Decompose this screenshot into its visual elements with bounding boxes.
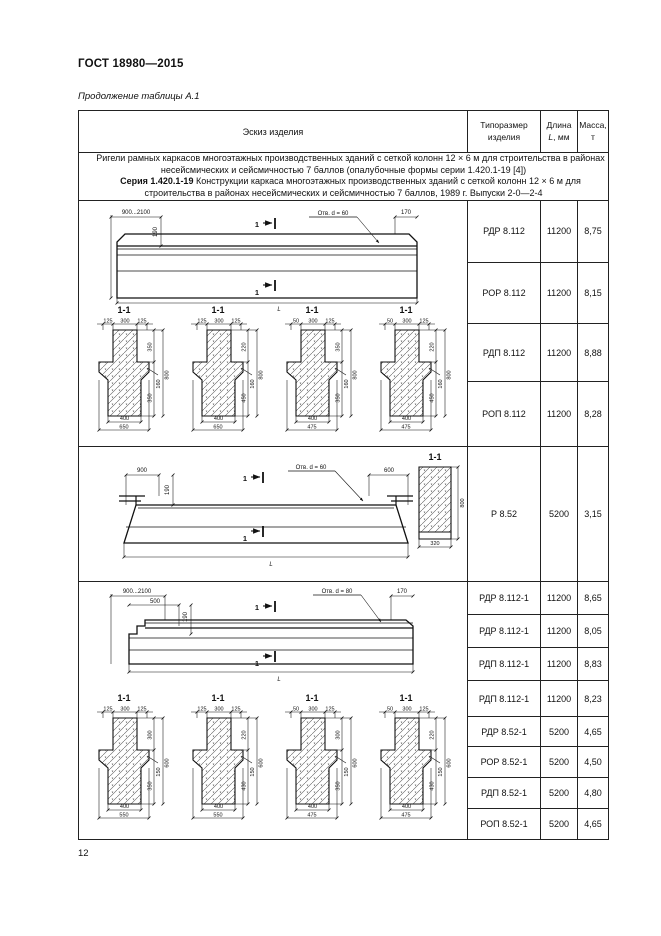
series-note: Ригели рамных каркасов многоэтажных прои…	[79, 153, 609, 201]
mass-cell: 8,88	[578, 324, 609, 382]
dim-label: 475	[307, 812, 316, 818]
doc-number: ГОСТ 18980—2015	[78, 58, 184, 70]
length-cell: 5200	[541, 747, 578, 778]
dim-label: 125	[103, 706, 112, 712]
hole-label: Отв. d = 60	[296, 465, 327, 471]
dim-label: 50	[387, 706, 393, 712]
mass-cell: 8,23	[578, 681, 609, 717]
dim-label: 150	[438, 767, 444, 776]
dim-label: 300	[308, 706, 317, 712]
type-cell: РДР 8.112-1	[468, 614, 541, 647]
dim-label: 125	[197, 318, 206, 324]
dim-label: 600	[259, 758, 265, 767]
mass-cell: 4,50	[578, 747, 609, 778]
dim-label: 160	[156, 379, 162, 388]
beam-outline	[117, 234, 417, 298]
length-cell: 11200	[541, 614, 578, 647]
dim-label: 450	[242, 393, 248, 402]
cut-number: 1	[243, 474, 247, 483]
col-header-mass: Масса,т	[578, 111, 609, 153]
dim-label: 190	[153, 226, 159, 237]
col-header-type-line1: Типоразмер	[468, 120, 540, 131]
cut-number: 1	[243, 534, 247, 543]
length-cell: 5200	[541, 808, 578, 839]
section-shape	[419, 467, 451, 532]
col-header-length-line1: Длина	[541, 120, 577, 131]
dim-label: 125	[325, 706, 334, 712]
dim-label: 160	[344, 379, 350, 388]
products-table: Эскиз изделия Типоразмеризделия ДлинаL, …	[78, 110, 609, 840]
dim-label: 300	[402, 318, 411, 324]
type-cell: РДП 8.112	[468, 324, 541, 382]
dim-label: 350	[336, 393, 342, 402]
dim-label: 400	[214, 416, 223, 422]
section-title: 1-1	[399, 305, 412, 315]
cross-section: 125 300 125 220 150 430 600 400 550	[191, 706, 265, 819]
mass-cell: 8,15	[578, 263, 609, 324]
dim-label: 50	[293, 318, 299, 324]
mass-cell: 4,80	[578, 778, 609, 808]
dim-label: 900...2100	[123, 589, 152, 595]
console-brackets	[119, 496, 413, 505]
dim-label: 550	[119, 812, 128, 818]
dim-label: 300	[402, 706, 411, 712]
beam-drawing-8112: 900...2100 190 1 1 Отв. d = 60 170 L 1-1	[79, 201, 468, 446]
dim-label: 650	[119, 424, 128, 430]
length-unit: , мм	[553, 132, 569, 142]
dim-label: 400	[214, 804, 223, 810]
type-cell: РОР 8.112	[468, 263, 541, 324]
dim-label: 300	[120, 318, 129, 324]
dim-label: 450	[430, 393, 436, 402]
dim-label: 220	[430, 730, 436, 739]
length-cell: 5200	[541, 717, 578, 747]
mass-cell: 8,05	[578, 614, 609, 647]
type-cell: РДР 8.112-1	[468, 581, 541, 614]
cut-number: 1	[255, 288, 259, 297]
dim-label: 125	[137, 706, 146, 712]
section-cut-mark	[251, 472, 263, 483]
document-page: ГОСТ 18980—2015 Продолжение таблицы А.1 …	[0, 0, 661, 936]
mass-cell: 4,65	[578, 808, 609, 839]
note-text-2: Конструкции каркаса многоэтажных произво…	[144, 176, 580, 198]
beam-drawing-8112-1: 900...2100 500 190 1 1 Отв. d = 80 170 L	[79, 582, 468, 839]
length-dim-label: L	[277, 307, 280, 313]
dim-label: 125	[231, 706, 240, 712]
dim-label: 125	[325, 318, 334, 324]
dim-label: 475	[307, 424, 316, 430]
dim-label: 220	[242, 342, 248, 351]
cross-sections-8112: 1-1 1-1 1-1 1-1 125 300 125 350 160 350 …	[97, 305, 453, 432]
length-dim-label: L	[277, 677, 280, 683]
length-cell: 11200	[541, 648, 578, 681]
dim-label: 150	[344, 767, 350, 776]
dim-label: 125	[103, 318, 112, 324]
sketch-cell-852: 900 190 1 1 Отв. d = 60 600 L 1-1	[79, 446, 468, 581]
col-header-length: ДлинаL, мм	[541, 111, 578, 153]
section-title: 1-1	[117, 693, 130, 703]
beam-elevation-11200-1: 900...2100 500 190 1 1 Отв. d = 80 170 L	[110, 589, 415, 683]
series-number: Серия 1.420.1-19	[120, 176, 193, 186]
mass-cell: 4,65	[578, 717, 609, 747]
dim-label: 500	[150, 599, 161, 605]
dim-label: 170	[397, 589, 408, 595]
type-cell: Р 8.52	[468, 446, 541, 581]
mass-cell: 8,28	[578, 382, 609, 446]
length-cell: 11200	[541, 581, 578, 614]
page-number: 12	[78, 848, 89, 859]
table-row: 900 190 1 1 Отв. d = 60 600 L 1-1	[79, 446, 609, 581]
length-cell: 5200	[541, 446, 578, 581]
beam-elevation-5200: 900 190 1 1 Отв. d = 60 600 L	[119, 465, 413, 568]
hole-label: Отв. d = 60	[318, 211, 349, 217]
dim-label: 160	[438, 379, 444, 388]
dim-label: 125	[231, 318, 240, 324]
section-base	[419, 532, 451, 539]
length-cell: 11200	[541, 382, 578, 446]
length-cell: 11200	[541, 263, 578, 324]
dim-label: 400	[120, 804, 129, 810]
beam-outline	[129, 620, 413, 664]
dim-label: 125	[419, 318, 428, 324]
dim-label: 125	[197, 706, 206, 712]
dim-label: 400	[402, 416, 411, 422]
table-row: 900...2100 190 1 1 Отв. d = 60 170 L 1-1	[79, 200, 609, 262]
hole-label: Отв. d = 80	[322, 589, 353, 595]
dim-label: 190	[183, 611, 189, 622]
note-paragraph-2: Серия 1.420.1-19 Конструкции каркаса мно…	[79, 176, 608, 199]
mass-cell: 8,83	[578, 648, 609, 681]
note-paragraph-1: Ригели рамных каркасов многоэтажных прои…	[79, 153, 608, 176]
note-text-1: Ригели рамных каркасов многоэтажных прои…	[96, 153, 605, 175]
cross-sections-8112-1: 1-1 1-1 1-1 1-1 125 300 125 300 150 350 …	[97, 693, 453, 820]
dim-label: 600	[165, 758, 171, 767]
sketch-cell-8112-1: 900...2100 500 190 1 1 Отв. d = 80 170 L	[79, 581, 468, 839]
sketch-cell-8112: 900...2100 190 1 1 Отв. d = 60 170 L 1-1	[79, 200, 468, 446]
beam-drawing-852: 900 190 1 1 Отв. d = 60 600 L 1-1	[79, 447, 468, 581]
length-cell: 11200	[541, 200, 578, 262]
section-title: 1-1	[211, 693, 224, 703]
dim-label: 600	[353, 758, 359, 767]
dim-label: 320	[430, 541, 439, 547]
dim-label: 350	[148, 393, 154, 402]
dim-label: 800	[460, 498, 466, 507]
type-cell: РДР 8.52-1	[468, 717, 541, 747]
dim-label: 550	[213, 812, 222, 818]
dim-label: 600	[447, 758, 453, 767]
cross-section: 125 300 125 350 160 350 800 400 650	[97, 318, 171, 431]
dim-label: 430	[430, 781, 436, 790]
dim-label: 800	[165, 370, 171, 379]
dim-label: 400	[120, 416, 129, 422]
dim-label: 125	[419, 706, 428, 712]
dim-label: 150	[156, 767, 162, 776]
dim-label: 190	[165, 484, 171, 495]
section-title: 1-1	[399, 693, 412, 703]
section-title: 1-1	[428, 452, 441, 462]
type-cell: РОР 8.52-1	[468, 747, 541, 778]
hole-leader	[335, 471, 363, 501]
cut-number: 1	[255, 603, 259, 612]
dim-label: 350	[336, 781, 342, 790]
dim-label: 300	[336, 730, 342, 739]
cross-section: 50 300 125 350 160 350 800 400 475	[285, 318, 359, 431]
section-title: 1-1	[305, 305, 318, 315]
dim-label: 350	[336, 342, 342, 351]
dim-label: 150	[250, 767, 256, 776]
dim-label: 170	[401, 210, 412, 216]
dim-label: 400	[402, 804, 411, 810]
dim-label: 50	[387, 318, 393, 324]
section-cut-mark	[263, 601, 275, 612]
col-header-type-line2: изделия	[468, 132, 540, 143]
dim-label: 160	[250, 379, 256, 388]
dim-label: 900...2100	[122, 210, 151, 216]
header-row: Эскиз изделия Типоразмеризделия ДлинаL, …	[79, 111, 609, 153]
dim-label: 350	[148, 781, 154, 790]
cross-section: 50 300 125 220 160 450 800 400 475	[379, 318, 453, 431]
cross-section: 50 300 125 220 150 430 600 400 475	[379, 706, 453, 819]
dim-label: 300	[308, 318, 317, 324]
dim-label: 300	[148, 730, 154, 739]
dim-label: 800	[259, 370, 265, 379]
cross-section: 125 300 125 220 160 450 800 400 650	[191, 318, 265, 431]
beam-elevation-11200: 900...2100 190 1 1 Отв. d = 60 170 L	[110, 210, 419, 313]
length-dim-label: L	[269, 562, 272, 568]
col-header-mass-line1: Масса,	[578, 120, 608, 131]
mass-cell: 8,65	[578, 581, 609, 614]
section-title: 1-1	[305, 693, 318, 703]
col-header-sketch: Эскиз изделия	[79, 111, 468, 153]
type-cell: РОП 8.112	[468, 382, 541, 446]
note-row: Ригели рамных каркасов многоэтажных прои…	[79, 153, 609, 201]
table-caption: Продолжение таблицы А.1	[78, 91, 200, 102]
table-row: 900...2100 500 190 1 1 Отв. d = 80 170 L	[79, 581, 609, 614]
type-cell: РДП 8.112-1	[468, 648, 541, 681]
beam-outline	[124, 505, 408, 543]
dim-label: 50	[293, 706, 299, 712]
type-cell: РДП 8.112-1	[468, 681, 541, 717]
type-cell: РДП 8.52-1	[468, 778, 541, 808]
section-title: 1-1	[211, 305, 224, 315]
length-cell: 11200	[541, 324, 578, 382]
dim-label: 650	[213, 424, 222, 430]
dim-label: 220	[430, 342, 436, 351]
cross-section: 50 300 125 300 150 350 600 400 475	[285, 706, 359, 819]
col-header-mass-line2: т	[578, 132, 608, 143]
hole-leader	[361, 595, 381, 622]
type-cell: РОП 8.52-1	[468, 808, 541, 839]
section-title: 1-1	[117, 305, 130, 315]
cut-number: 1	[255, 659, 259, 668]
mass-cell: 8,75	[578, 200, 609, 262]
dim-label: 220	[242, 730, 248, 739]
dim-label: 300	[120, 706, 129, 712]
mass-cell: 3,15	[578, 446, 609, 581]
dim-label: 300	[214, 318, 223, 324]
dim-label: 475	[401, 424, 410, 430]
cut-number: 1	[255, 220, 259, 229]
dim-label: 900	[137, 468, 148, 474]
length-cell: 11200	[541, 681, 578, 717]
dim-label: 800	[353, 370, 359, 379]
dim-label: 300	[214, 706, 223, 712]
dim-label: 600	[384, 468, 395, 474]
dim-label: 430	[242, 781, 248, 790]
dim-label: 125	[137, 318, 146, 324]
dim-label: 800	[447, 370, 453, 379]
cross-section: 125 300 125 300 150 350 600 400 550	[97, 706, 171, 819]
dim-label: 400	[308, 416, 317, 422]
type-cell: РДР 8.112	[468, 200, 541, 262]
dim-label: 400	[308, 804, 317, 810]
col-header-type: Типоразмеризделия	[468, 111, 541, 153]
dim-label: 475	[401, 812, 410, 818]
col-header-length-line2: L, мм	[541, 132, 577, 143]
section-cut-mark	[263, 218, 275, 229]
length-cell: 5200	[541, 778, 578, 808]
dim-label: 350	[148, 342, 154, 351]
cross-section-852: 1-1 800 320	[418, 452, 467, 549]
